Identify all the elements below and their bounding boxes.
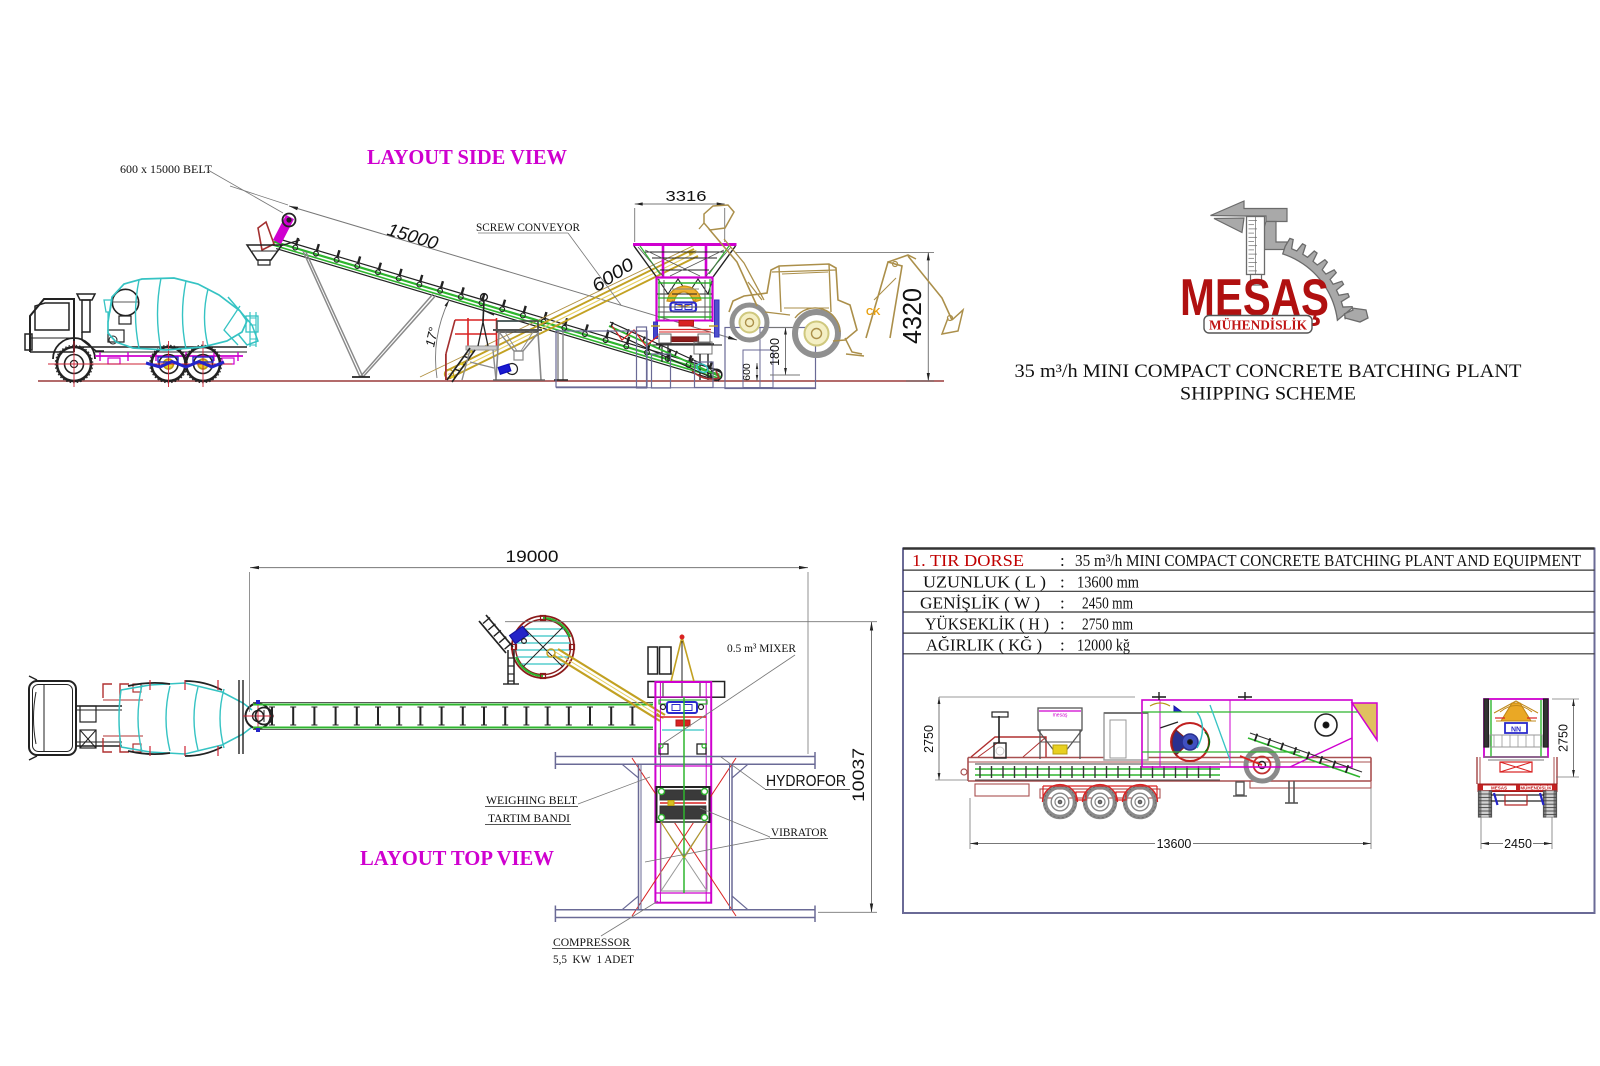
svg-text:COMPRESSOR: COMPRESSOR — [553, 935, 630, 949]
svg-text:YÜKSEKLİK ( H ): YÜKSEKLİK ( H ) — [925, 615, 1049, 634]
svg-text:mesaş: mesaş — [1053, 713, 1068, 719]
svg-text:GENİŞLİK ( W ): GENİŞLİK ( W ) — [920, 594, 1040, 613]
svg-text::: : — [1060, 594, 1065, 613]
svg-text:TARTIM BANDI: TARTIM BANDI — [488, 811, 570, 825]
svg-text:WEIGHING BELT: WEIGHING BELT — [486, 793, 578, 807]
svg-text:13600: 13600 — [1157, 837, 1192, 851]
svg-text:NN: NN — [1511, 727, 1521, 734]
svg-text:35 m³/h MINI COMPACT CONCRETE: 35 m³/h MINI COMPACT CONCRETE BATCHING P… — [1075, 551, 1582, 570]
svg-text:13600 mm: 13600 mm — [1077, 573, 1139, 592]
svg-text:2750: 2750 — [922, 725, 936, 753]
svg-text:2750 mm: 2750 mm — [1082, 615, 1133, 634]
svg-text:AĞIRLIK ( KĞ ): AĞIRLIK ( KĞ ) — [926, 636, 1042, 655]
svg-text:10037: 10037 — [849, 748, 868, 802]
svg-text:1800: 1800 — [768, 338, 782, 366]
svg-text:2450: 2450 — [1504, 837, 1532, 851]
svg-text:19000: 19000 — [506, 547, 559, 566]
svg-text:12000 kğ: 12000 kğ — [1077, 636, 1130, 655]
svg-text:5,5 KW 1 ADET: 5,5 KW 1 ADET — [553, 952, 635, 966]
svg-text:CK: CK — [866, 307, 881, 318]
svg-text:600: 600 — [741, 363, 753, 381]
svg-text:600 x 15000 BELT: 600 x 15000 BELT — [120, 162, 213, 176]
svg-text:MÜHENDİSLİK: MÜHENDİSLİK — [1209, 318, 1307, 333]
svg-text:35 m³/h MINI COMPACT CONCRETE: 35 m³/h MINI COMPACT CONCRETE BATCHING P… — [1015, 361, 1522, 382]
svg-text:MESAŞ: MESAŞ — [1491, 786, 1507, 791]
svg-text:SHIPPING SCHEME: SHIPPING SCHEME — [1180, 384, 1356, 405]
svg-text:1. TIR DORSE: 1. TIR DORSE — [912, 551, 1024, 570]
svg-text:VIBRATOR: VIBRATOR — [771, 825, 827, 839]
svg-text:MÜHENDİSLİK: MÜHENDİSLİK — [1520, 785, 1552, 791]
svg-text:4320: 4320 — [897, 288, 927, 344]
svg-text:2450 mm: 2450 mm — [1082, 594, 1133, 613]
svg-text:SCREW CONVEYOR: SCREW CONVEYOR — [476, 220, 580, 234]
svg-text:0.5 m³ MIXER: 0.5 m³ MIXER — [727, 641, 796, 655]
svg-text:UZUNLUK ( L ): UZUNLUK ( L ) — [923, 573, 1046, 592]
svg-text::: : — [1060, 551, 1065, 570]
svg-text::: : — [1060, 636, 1065, 655]
svg-text::: : — [1060, 615, 1065, 634]
svg-text:LAYOUT SIDE VIEW: LAYOUT SIDE VIEW — [367, 145, 567, 169]
svg-text:LAYOUT TOP VIEW: LAYOUT TOP VIEW — [360, 846, 554, 870]
svg-text:3316: 3316 — [666, 188, 707, 205]
svg-text::: : — [1060, 573, 1065, 592]
svg-text:HYDROFOR: HYDROFOR — [766, 773, 846, 790]
svg-text:2750: 2750 — [1557, 724, 1571, 752]
